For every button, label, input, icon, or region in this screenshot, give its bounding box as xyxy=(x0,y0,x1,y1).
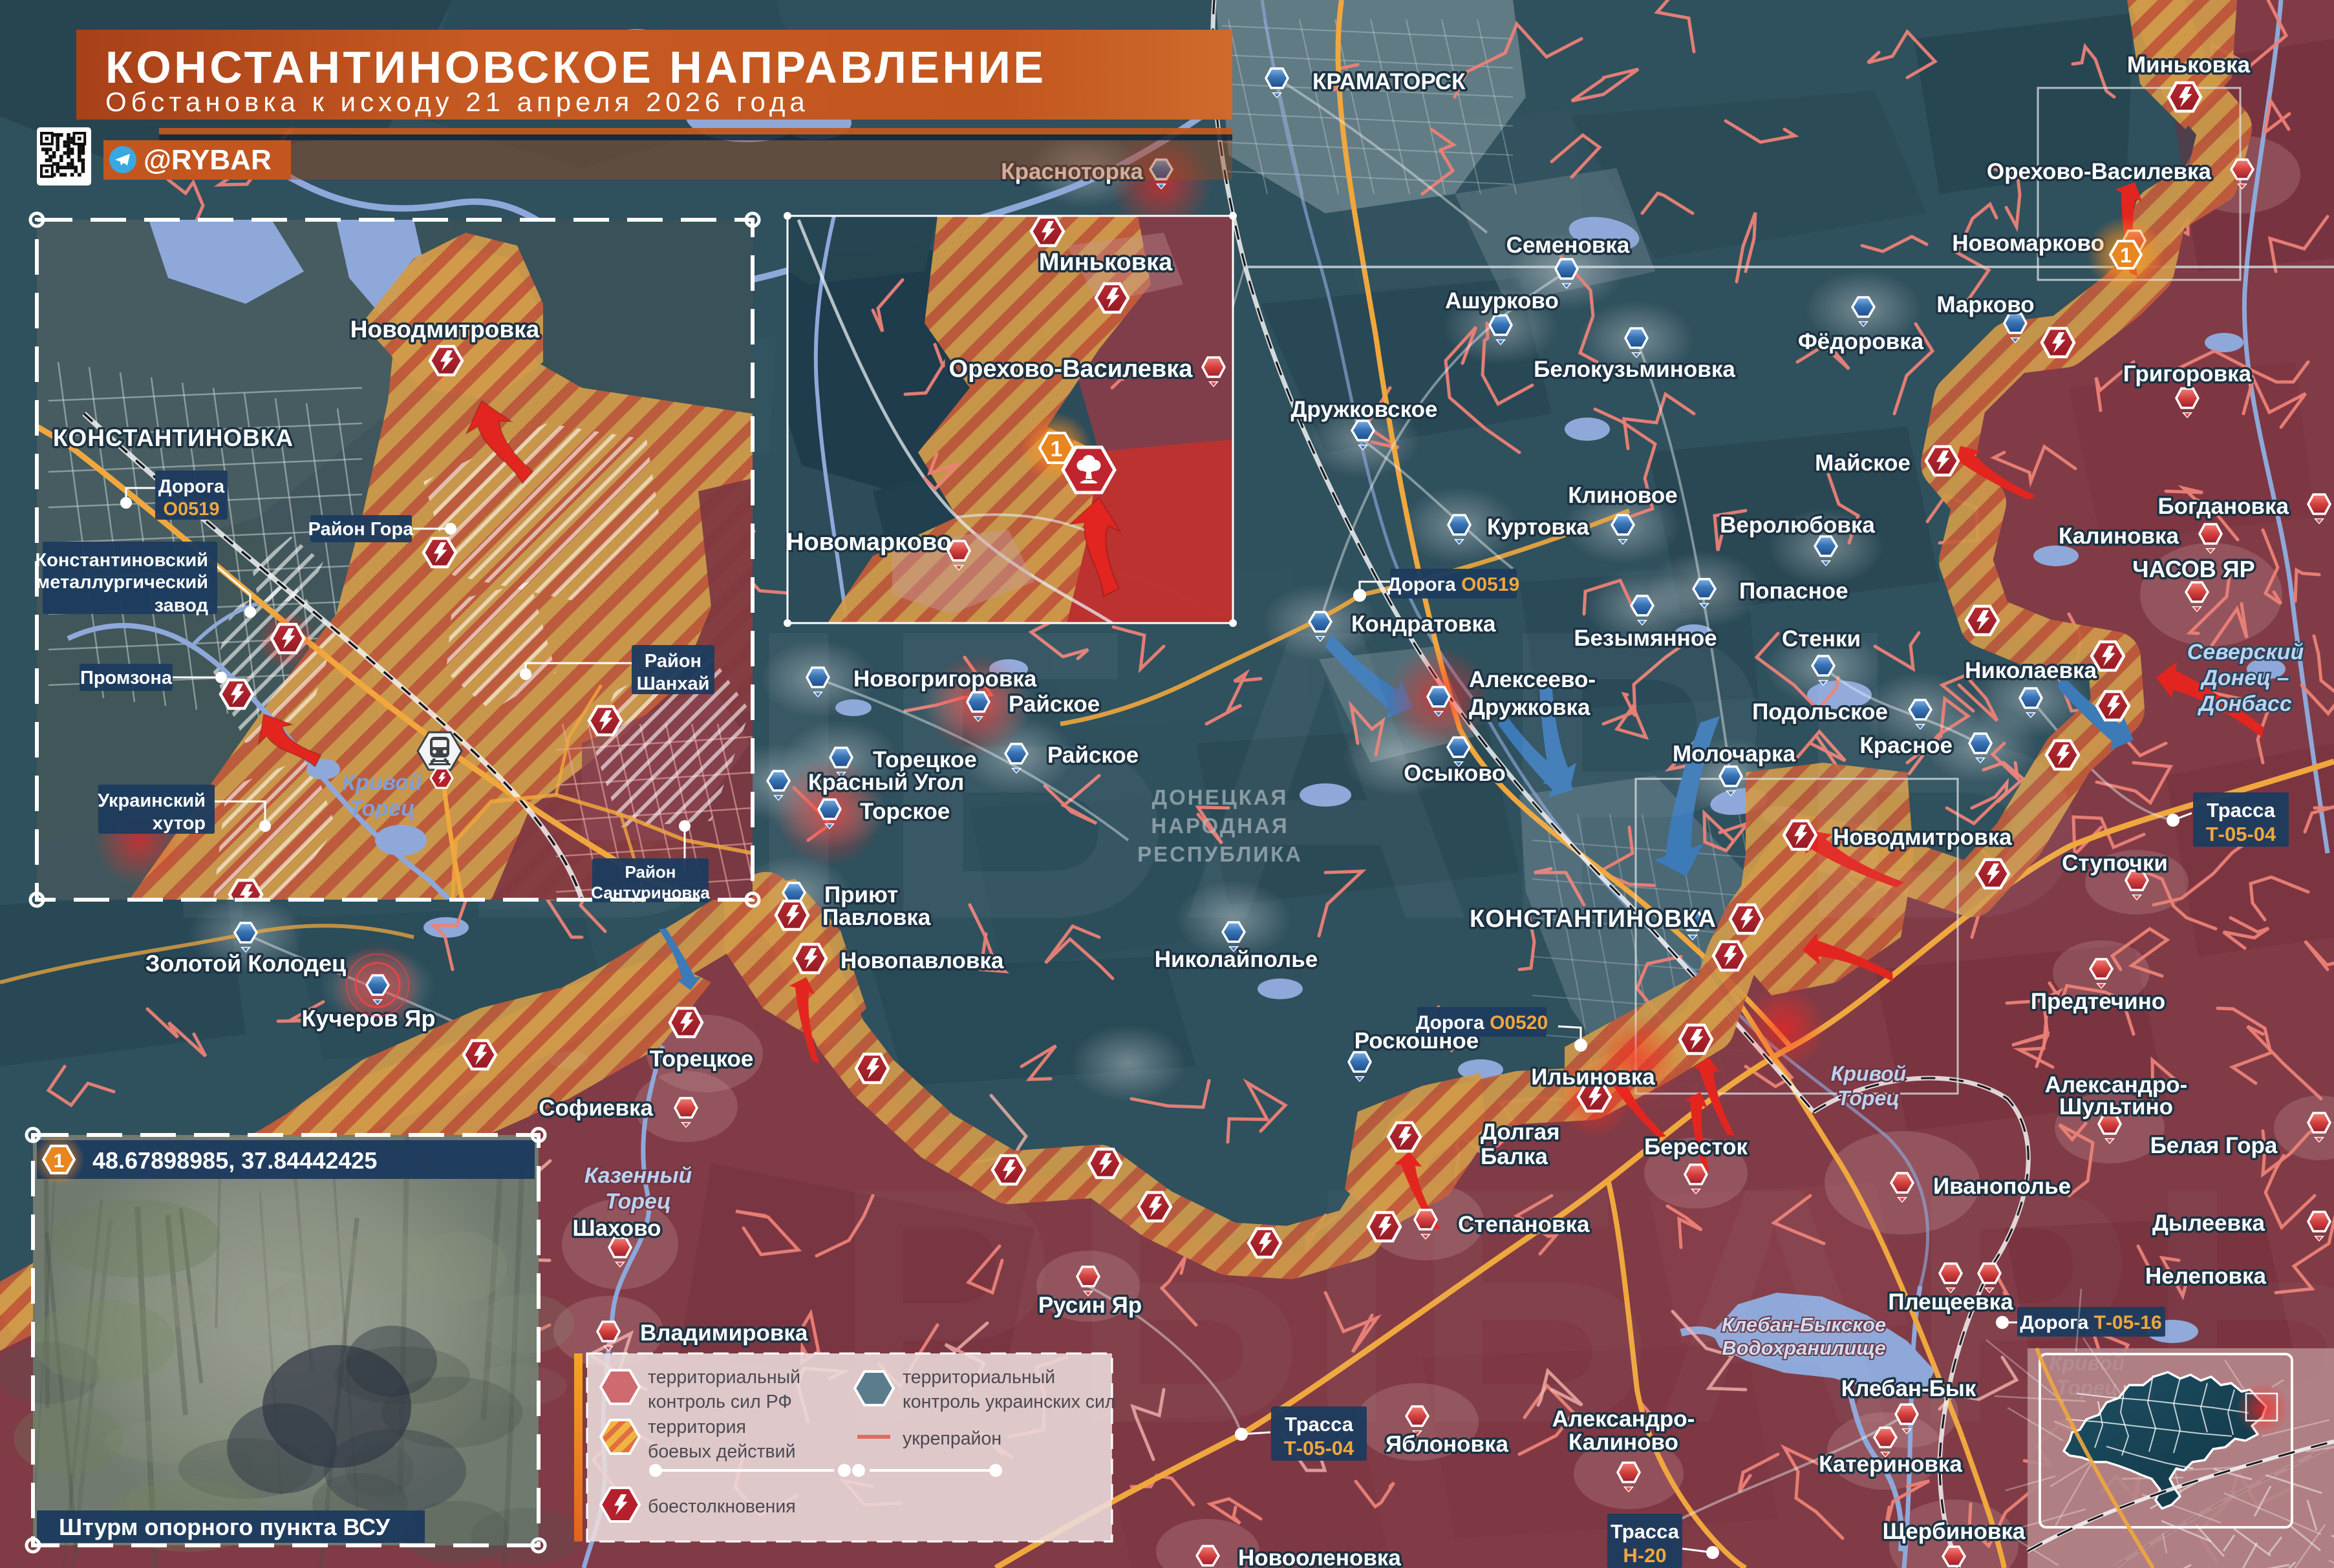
svg-text:Трасса: Трасса xyxy=(2207,799,2276,821)
svg-text:завод: завод xyxy=(155,595,208,616)
svg-text:48.67898985, 37.84442425: 48.67898985, 37.84442425 xyxy=(92,1147,377,1174)
svg-text:Дружковское: Дружковское xyxy=(1290,397,1437,422)
svg-text:Подольское: Подольское xyxy=(1752,699,1888,725)
svg-text:Семеновка: Семеновка xyxy=(1506,233,1630,258)
svg-text:Шахово: Шахово xyxy=(572,1216,661,1241)
svg-text:Алексеево-: Алексеево- xyxy=(1469,667,1596,692)
svg-text:Дорога О0519: Дорога О0519 xyxy=(1387,574,1519,595)
svg-text:Осыково: Осыково xyxy=(1404,761,1505,786)
svg-text:КРАМАТОРСК: КРАМАТОРСК xyxy=(1312,69,1466,94)
svg-text:хутор: хутор xyxy=(153,813,206,834)
svg-text:территория: территория xyxy=(648,1417,746,1437)
svg-text:ЧАСОВ ЯР: ЧАСОВ ЯР xyxy=(2132,556,2254,582)
svg-text:территориальный: территориальный xyxy=(648,1367,800,1388)
svg-text:Григоровка: Григоровка xyxy=(2123,361,2252,387)
svg-text:Ильиновка: Ильиновка xyxy=(1531,1065,1655,1090)
svg-text:Новодмитровка: Новодмитровка xyxy=(1833,825,2012,850)
svg-text:Торское: Торское xyxy=(860,799,950,824)
svg-text:Веролюбовка: Веролюбовка xyxy=(1720,513,1875,538)
svg-text:Софиевка: Софиевка xyxy=(539,1096,653,1121)
svg-text:контроль украинских сил: контроль украинских сил xyxy=(903,1392,1116,1412)
svg-text:Кривой: Кривой xyxy=(1831,1062,1906,1085)
svg-text:Предтечино: Предтечино xyxy=(2031,989,2165,1014)
svg-text:Кривой: Кривой xyxy=(342,770,422,795)
svg-text:Константиновский: Константиновский xyxy=(35,550,208,571)
svg-text:Донец –: Донец – xyxy=(2200,666,2289,690)
svg-text:Донбасс: Донбасс xyxy=(2197,692,2292,716)
svg-text:Торец: Торец xyxy=(1837,1086,1900,1110)
svg-text:Орехово-Василевка: Орехово-Василевка xyxy=(1987,159,2212,184)
svg-text:Ступочки: Ступочки xyxy=(2062,851,2168,876)
svg-text:Белая Гора: Белая Гора xyxy=(2150,1133,2278,1158)
svg-text:боевых действий: боевых действий xyxy=(648,1441,796,1462)
svg-text:Новопавловка: Новопавловка xyxy=(840,948,1004,973)
svg-text:Дружковка: Дружковка xyxy=(1469,695,1590,720)
svg-text:Трасса: Трасса xyxy=(1285,1413,1354,1436)
svg-text:Промзона: Промзона xyxy=(80,668,173,688)
svg-text:Новомарково: Новомарково xyxy=(1952,231,2104,256)
svg-text:Райское: Райское xyxy=(1047,743,1139,768)
svg-text:Молочарка: Молочарка xyxy=(1673,741,1796,767)
svg-text:Владимировка: Владимировка xyxy=(640,1320,808,1346)
svg-text:Дорога Т-05-16: Дорога Т-05-16 xyxy=(2020,1312,2161,1333)
svg-text:Клебан-Бык: Клебан-Бык xyxy=(1841,1376,1976,1401)
svg-text:КОНСТАНТИНОВКА: КОНСТАНТИНОВКА xyxy=(53,425,294,451)
svg-text:Николайполье: Николайполье xyxy=(1155,947,1318,972)
svg-text:Торец: Торец xyxy=(349,796,415,821)
svg-text:Миньковка: Миньковка xyxy=(2127,52,2251,78)
svg-text:Майское: Майское xyxy=(1815,450,1911,476)
svg-text:Шанхай: Шанхай xyxy=(637,673,710,694)
svg-text:контроль сил РФ: контроль сил РФ xyxy=(648,1392,792,1412)
svg-text:Дорога: Дорога xyxy=(158,476,225,497)
svg-text:Богдановка: Богдановка xyxy=(2158,494,2289,519)
svg-text:Плещеевка: Плещеевка xyxy=(1888,1289,2013,1315)
svg-text:Орехово-Василевка: Орехово-Василевка xyxy=(949,355,1194,383)
svg-text:Марково: Марково xyxy=(1936,292,2034,317)
svg-text:Красное: Красное xyxy=(1859,733,1953,758)
svg-text:Украинский: Украинский xyxy=(98,790,206,811)
svg-text:Красный Угол: Красный Угол xyxy=(808,770,964,795)
svg-text:Т-05-04: Т-05-04 xyxy=(2206,823,2276,845)
svg-text:Калиново: Калиново xyxy=(1568,1430,1678,1455)
svg-text:Долгая: Долгая xyxy=(1481,1119,1560,1145)
svg-text:Т-05-04: Т-05-04 xyxy=(1284,1437,1354,1459)
svg-text:Торец: Торец xyxy=(605,1189,671,1214)
svg-text:Райское: Райское xyxy=(1009,692,1100,717)
svg-text:Штурм опорного пункта ВСУ: Штурм опорного пункта ВСУ xyxy=(59,1514,391,1540)
svg-text:Русин Яр: Русин Яр xyxy=(1038,1293,1142,1318)
svg-text:Золотой Колодец: Золотой Колодец xyxy=(145,950,346,977)
svg-text:Обстановка к исходу 21 апреля: Обстановка к исходу 21 апреля 2026 года xyxy=(105,87,809,117)
svg-text:Николаевка: Николаевка xyxy=(1965,658,2097,683)
svg-text:боестолкновения: боестолкновения xyxy=(648,1496,796,1517)
svg-text:Балка: Балка xyxy=(1481,1144,1548,1169)
svg-text:Куртовка: Куртовка xyxy=(1487,514,1589,540)
svg-text:О0519: О0519 xyxy=(163,499,219,520)
svg-text:Белокузьминовка: Белокузьминовка xyxy=(1534,357,1735,382)
svg-text:Калиновка: Калиновка xyxy=(2059,524,2179,549)
svg-text:Н-20: Н-20 xyxy=(1623,1544,1666,1567)
svg-text:1: 1 xyxy=(1051,437,1063,461)
svg-text:Нелеповка: Нелеповка xyxy=(2145,1264,2267,1289)
svg-text:Степановка: Степановка xyxy=(1458,1212,1590,1237)
svg-text:Торецкое: Торецкое xyxy=(650,1046,754,1072)
svg-text:Павловка: Павловка xyxy=(822,905,931,930)
svg-text:1: 1 xyxy=(54,1150,65,1172)
svg-text:Дылеевка: Дылеевка xyxy=(2152,1211,2265,1236)
svg-text:Кучеров Яр: Кучеров Яр xyxy=(302,1005,436,1032)
svg-text:Безымянное: Безымянное xyxy=(1574,626,1717,651)
svg-text:Новомарково: Новомарково xyxy=(786,529,952,556)
svg-text:Дорога О0520: Дорога О0520 xyxy=(1416,1012,1548,1033)
svg-text:Кондратовка: Кондратовка xyxy=(1351,611,1496,637)
svg-text:Александро-: Александро- xyxy=(1552,1406,1695,1432)
svg-text:Казенный: Казенный xyxy=(584,1163,692,1188)
svg-text:@RYBAR: @RYBAR xyxy=(144,144,272,176)
svg-text:Новодмитровка: Новодмитровка xyxy=(350,316,540,343)
svg-text:Бересток: Бересток xyxy=(1644,1134,1748,1160)
svg-text:Попасное: Попасное xyxy=(1739,578,1848,604)
svg-text:1: 1 xyxy=(2120,244,2132,267)
svg-text:Катериновка: Катериновка xyxy=(1819,1452,1962,1477)
svg-text:Район: Район xyxy=(625,862,676,882)
svg-text:Шультино: Шультино xyxy=(2059,1094,2173,1119)
svg-text:Яблоновка: Яблоновка xyxy=(1386,1432,1509,1457)
svg-text:КОНСТАНТИНОВКА: КОНСТАНТИНОВКА xyxy=(1470,906,1717,933)
svg-text:территориальный: территориальный xyxy=(903,1367,1055,1388)
svg-text:укрепрайон: укрепрайон xyxy=(903,1428,1001,1449)
svg-text:Район Гора: Район Гора xyxy=(308,519,414,540)
svg-text:Миньковка: Миньковка xyxy=(1039,249,1173,276)
svg-text:Ашурково: Ашурково xyxy=(1445,288,1559,313)
svg-text:Северский: Северский xyxy=(2187,640,2304,664)
svg-text:Клиновое: Клиновое xyxy=(1568,483,1678,508)
svg-text:Новогригоровка: Новогригоровка xyxy=(853,666,1037,692)
svg-text:Трасса: Трасса xyxy=(1611,1520,1680,1543)
svg-text:Торецкое: Торецкое xyxy=(873,747,977,772)
svg-text:металлургический: металлургический xyxy=(36,572,208,593)
svg-text:Фёдоровка: Фёдоровка xyxy=(1798,329,1924,354)
svg-text:Новооленовка: Новооленовка xyxy=(1238,1545,1401,1568)
svg-text:Приют: Приют xyxy=(824,882,898,907)
svg-text:Иванополье: Иванополье xyxy=(1933,1174,2071,1199)
svg-text:Стенки: Стенки xyxy=(1782,626,1861,652)
svg-text:Район: Район xyxy=(645,651,701,672)
svg-text:КОНСТАНТИНОВСКОЕ НАПРАВЛЕНИЕ: КОНСТАНТИНОВСКОЕ НАПРАВЛЕНИЕ xyxy=(105,42,1047,92)
